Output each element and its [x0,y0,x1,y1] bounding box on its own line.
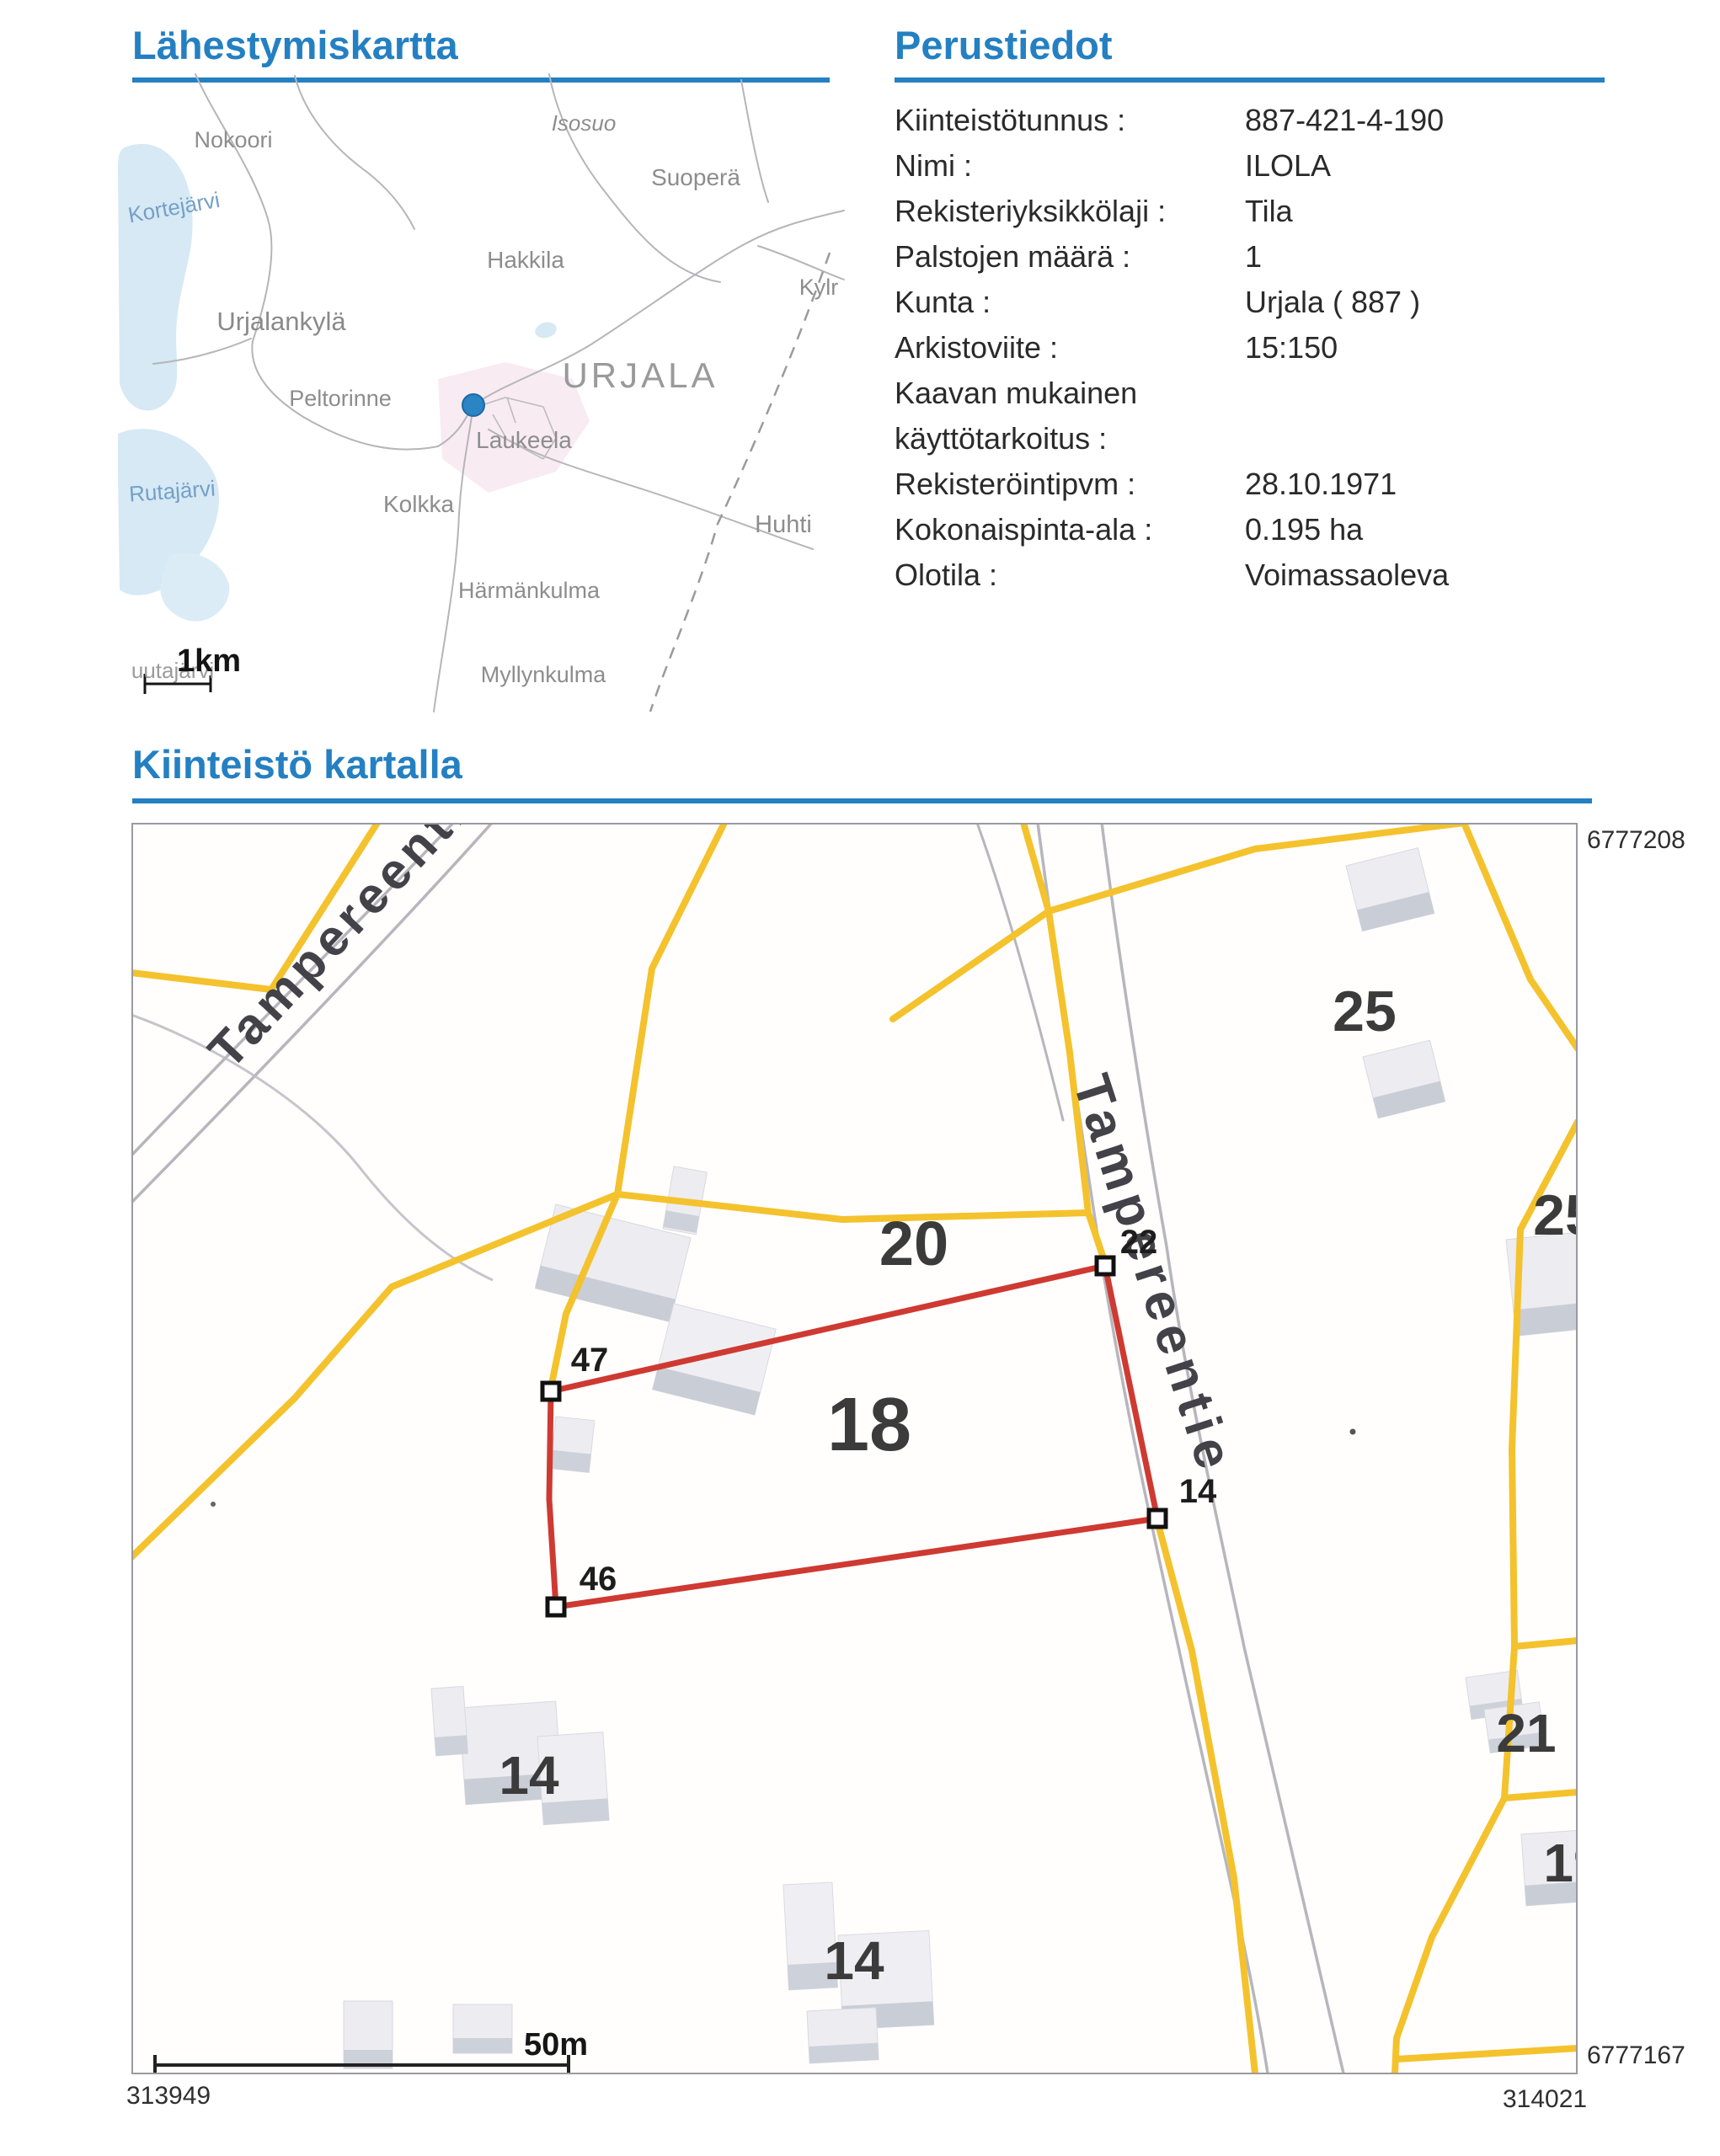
boundary-point-number-22: 22 [1120,1224,1158,1261]
basic-info-row: Olotila :Voimassaoleva [895,552,1653,598]
approach-map-label-1km: 1km [177,643,241,679]
basic-info-label: Rekisteriyksikkölaji : [895,189,1166,234]
basic-info-value: ILOLA [1245,143,1331,189]
approach-map-label-peltorinne: Peltorinne [289,386,392,411]
boundary-point-marker-47 [542,1383,559,1400]
property-map-label-21: 21 [1496,1703,1556,1764]
boundary-point-number-47: 47 [571,1342,609,1379]
basic-info-label: käyttötarkoitus : [895,416,1107,462]
boundary-point-number-46: 46 [580,1561,617,1598]
map-speck [211,1502,216,1507]
approach-map-label-h-rm-nkulma: Härmänkulma [458,578,601,603]
property-map-rule [132,798,1592,803]
basic-info-label: Nimi : [895,143,972,189]
basic-info-value: 28.10.1971 [1245,462,1397,507]
basic-info-row: Nimi :ILOLA [895,143,1653,189]
property-map-frame: TampereentieTampereentie2018252521191414… [131,823,1578,2074]
boundary-point-marker-14 [1149,1510,1166,1527]
approach-map-label-kolkka: Kolkka [383,491,454,517]
approach-map-label-nokoori: Nokoori [194,127,272,152]
boundary-point-marker-46 [548,1598,564,1615]
property-map-label-19: 19 [1543,1833,1578,1893]
property-map-label-14: 14 [499,1745,559,1806]
railway-line [650,253,830,712]
small-pond [533,320,558,340]
basic-info-label: Palstojen määrä : [895,234,1130,280]
basic-info-value: 887-421-4-190 [1245,98,1444,143]
basic-info-value: Tila [1245,189,1293,234]
lake-kortejarvi [118,144,193,411]
basic-info-label: Arkistoviite : [895,325,1058,371]
approach-map-label-isosuo: Isosuo [552,110,617,136]
basic-info-row: käyttötarkoitus : [895,416,1653,462]
coord-label-bottom-left: 313949 [126,2082,211,2111]
boundary-point-marker-22 [1097,1257,1114,1274]
boundary-point-number-14: 14 [1179,1473,1217,1510]
property-map-label-50m: 50m [524,2027,588,2063]
basic-info-label: Kaavan mukainen [895,371,1137,416]
basic-info-rule [895,77,1605,83]
basic-info-row: Kaavan mukainen [895,371,1653,416]
coord-label-top-right: 6777208 [1587,826,1685,855]
approach-map-label-hakkila: Hakkila [487,247,564,273]
approach-map-label-urjalankyl-: Urjalankylä [216,307,346,336]
approach-map-label-kylr: Kylr [799,275,839,300]
basic-info-table: Kiinteistötunnus :887-421-4-190Nimi :ILO… [895,98,1653,598]
property-map-title: Kiinteistö kartalla [132,741,462,787]
basic-info-row: Kunta :Urjala ( 887 ) [895,280,1653,325]
basic-info-row: Kiinteistötunnus :887-421-4-190 [895,98,1653,143]
basic-info-label: Olotila : [895,552,997,598]
road-lines [131,823,1343,2073]
road-west-edge-2 [131,823,492,1203]
approach-map-label-huhti: Huhti [755,511,812,538]
property-map-label-14: 14 [824,1930,884,1991]
basic-info-label: Kiinteistötunnus : [895,98,1125,143]
road-branch [977,823,1063,1120]
basic-info-value: 15:150 [1245,325,1338,371]
coord-label-bottom: 314021 [1503,2085,1587,2114]
property-map-label-20: 20 [879,1209,948,1278]
property-map-label-25: 25 [1533,1183,1578,1247]
basic-info-value: Voimassaoleva [1245,552,1449,598]
property-map-label-18: 18 [827,1383,911,1467]
map-speck [1350,1429,1356,1435]
basic-info-value: Urjala ( 887 ) [1245,280,1420,325]
approach-map: NokooriIsosuoSuoperäKortejärviHakkilaKyl… [118,67,851,716]
basic-info-label: Rekisteröintipvm : [895,462,1135,507]
basic-info-value: 0.195 ha [1245,507,1363,552]
basic-info-value: 1 [1245,234,1262,280]
approach-map-label-suoper-: Suoperä [651,164,740,190]
basic-info-label: Kunta : [895,280,991,325]
basic-info-row: Arkistoviite :15:150 [895,325,1653,371]
basic-info-title: Perustiedot [895,22,1113,68]
approach-map-label-myllynkulma: Myllynkulma [481,662,607,687]
approach-map-title: Lähestymiskartta [132,22,458,68]
basic-info-row: Palstojen määrä :1 [895,234,1653,280]
property-map-label-25: 25 [1333,979,1397,1043]
property-location-dot [462,394,484,416]
approach-map-label-laukeela: Laukeela [476,427,572,453]
coord-label-bottom-right: 6777167 [1587,2041,1685,2070]
property-map-label-tampereentie: Tampereentie [1061,1068,1245,1482]
register-extract-page: { "accent_color": "#2480c2", "sections":… [0,0,1720,2156]
lake-rutajarvi-bay [160,553,229,622]
property-map: TampereentieTampereentie2018252521191414… [131,823,1578,2074]
approach-map-label-urjala: URJALA [562,355,718,395]
basic-info-row: Rekisteriyksikkölaji :Tila [895,189,1653,234]
basic-info-row: Kokonaispinta-ala :0.195 ha [895,507,1653,552]
basic-info-label: Kokonaispinta-ala : [895,507,1152,552]
basic-info-row: Rekisteröintipvm :28.10.1971 [895,462,1653,507]
